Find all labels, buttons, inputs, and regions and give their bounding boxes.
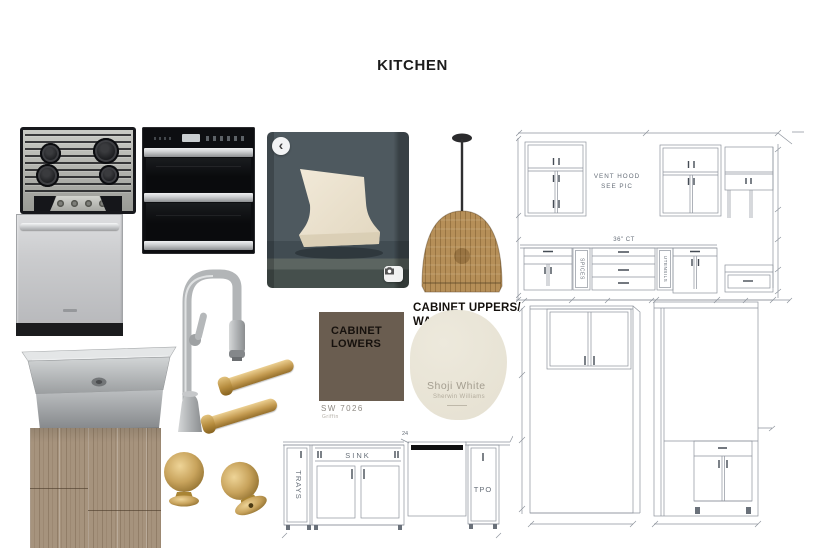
dishwasher-logo (63, 309, 77, 312)
cooktop-knob (71, 200, 78, 207)
kitchen-mood-board: KITCHEN (0, 0, 825, 560)
oven-lower-window (146, 203, 251, 240)
cooktop-control-panel (50, 196, 106, 211)
page-title: KITCHEN (0, 57, 825, 74)
vent-hood-photo: ‹ (267, 132, 409, 288)
sink-base-elevation-drawing: 24 TRAYS SINK TPO (281, 426, 513, 550)
base-cabinet-left (524, 248, 572, 290)
dishwasher-kick-plate (16, 323, 123, 336)
oven-display (182, 134, 200, 142)
dishwasher-handle (20, 223, 119, 230)
upper-cabinet-elevation-drawing: VENT HOOD SEE PIC 36" CT SPICES (516, 128, 806, 306)
brass-knob (158, 450, 214, 510)
paint-code: SW 7026 (321, 404, 364, 413)
wood-flooring-sample (30, 428, 161, 548)
tall-unit-left (530, 306, 640, 513)
paint-name-small: Griffin (322, 414, 339, 420)
cooktop-burner (93, 138, 119, 164)
oven-handle-bar (144, 193, 253, 202)
double-wall-oven-image (142, 127, 255, 254)
pendant-light-image (413, 126, 513, 294)
dishwasher-image (16, 214, 123, 336)
drawer-stack (592, 248, 655, 290)
gas-cooktop-image (20, 127, 136, 214)
plank-seam (88, 510, 161, 511)
paint-brand: Sherwin Williams (433, 394, 485, 400)
spices-label: SPICES (579, 258, 585, 280)
spices-pullout: SPICES (573, 248, 590, 290)
cabinet-lowers-label: CABINET LOWERS (331, 325, 382, 351)
tpo-cabinet: TPO (468, 445, 499, 524)
oven-handle-bar (144, 148, 253, 157)
cooktop-burner (36, 164, 59, 187)
dishwasher-dimension: 24 (402, 431, 408, 437)
cooktop-knob (57, 200, 64, 207)
upper-cabinet-left (525, 142, 586, 216)
oven-control-icons (154, 137, 174, 140)
shoji-white-name: Shoji White (427, 380, 486, 392)
plaster-hood-shape (267, 132, 409, 288)
tall-unit-right (654, 302, 775, 516)
upper-cabinet-corner (725, 147, 773, 288)
utensils-label: UTENSILS (663, 256, 668, 282)
trays-pullout: TRAYS (284, 445, 310, 525)
countertop-label: 36" CT (613, 237, 634, 243)
plank-seam (30, 488, 88, 489)
shoji-white-swatch (410, 310, 507, 420)
dishwasher-outline (408, 442, 466, 516)
bench-cabinet (725, 265, 773, 292)
brass-knob (216, 460, 272, 520)
utensils-pullout: UTENSILS (657, 248, 673, 290)
vent-hood-note-line2: SEE PIC (601, 183, 633, 190)
undermount-sink-image (20, 342, 178, 432)
back-arrow-icon[interactable]: ‹ (272, 137, 290, 155)
sink-base-cabinet: SINK (312, 445, 404, 525)
cooktop-burner (40, 143, 61, 164)
base-cabinet-right (673, 248, 717, 293)
tall-cabinet-elevation-drawing (518, 296, 810, 548)
cooktop-knob (85, 200, 92, 207)
sink-label: SINK (345, 451, 371, 460)
vent-hood-note-line1: VENT HOOD (594, 173, 640, 180)
upper-cabinet-right (660, 145, 721, 216)
oven-upper-window (146, 158, 251, 192)
oven-control-icons (206, 136, 244, 141)
trays-label: TRAYS (294, 470, 303, 499)
cooktop-burner (99, 165, 119, 185)
oven-trim-bar (144, 241, 253, 250)
swatch-underline (447, 405, 467, 406)
tpo-label: TPO (474, 485, 492, 494)
cabinet-lowers-swatch: CABINET LOWERS (319, 312, 404, 401)
camera-icon[interactable] (384, 266, 403, 282)
